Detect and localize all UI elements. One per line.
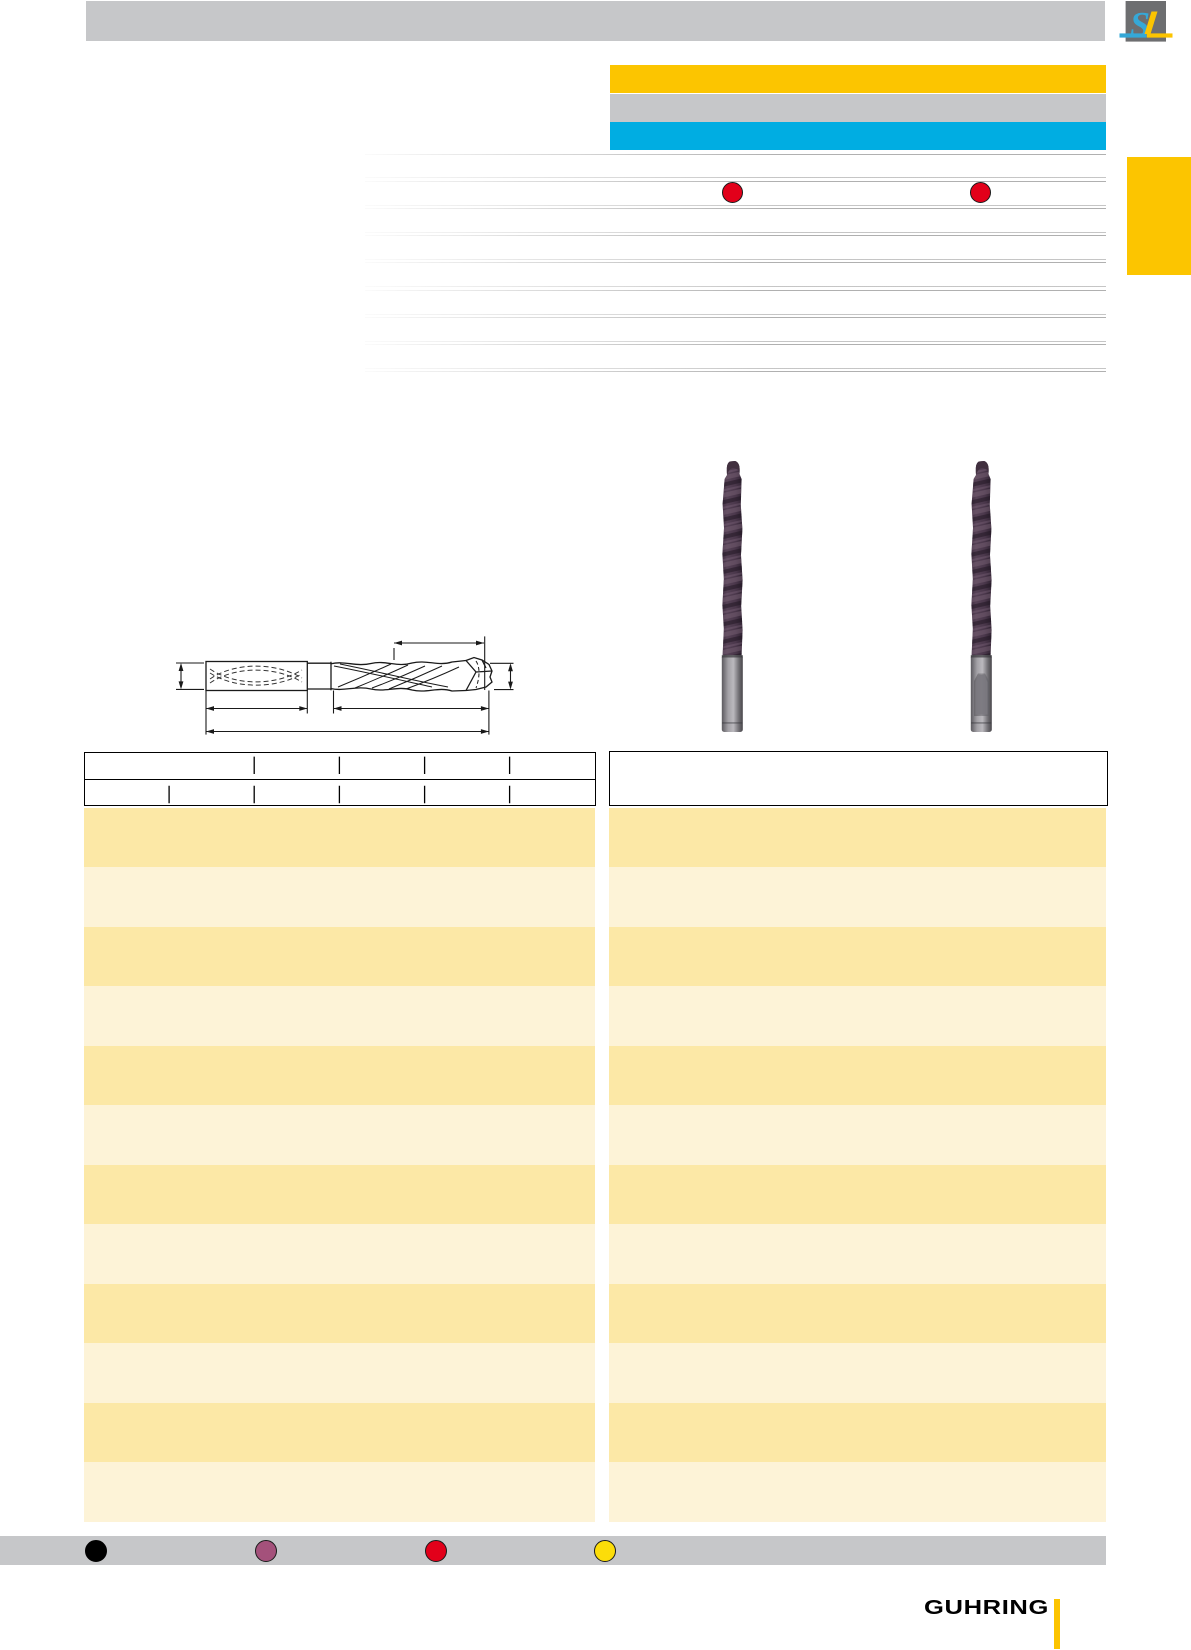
- svg-text:GUHRING: GUHRING: [924, 1596, 1049, 1619]
- svg-text:S: S: [1130, 5, 1150, 45]
